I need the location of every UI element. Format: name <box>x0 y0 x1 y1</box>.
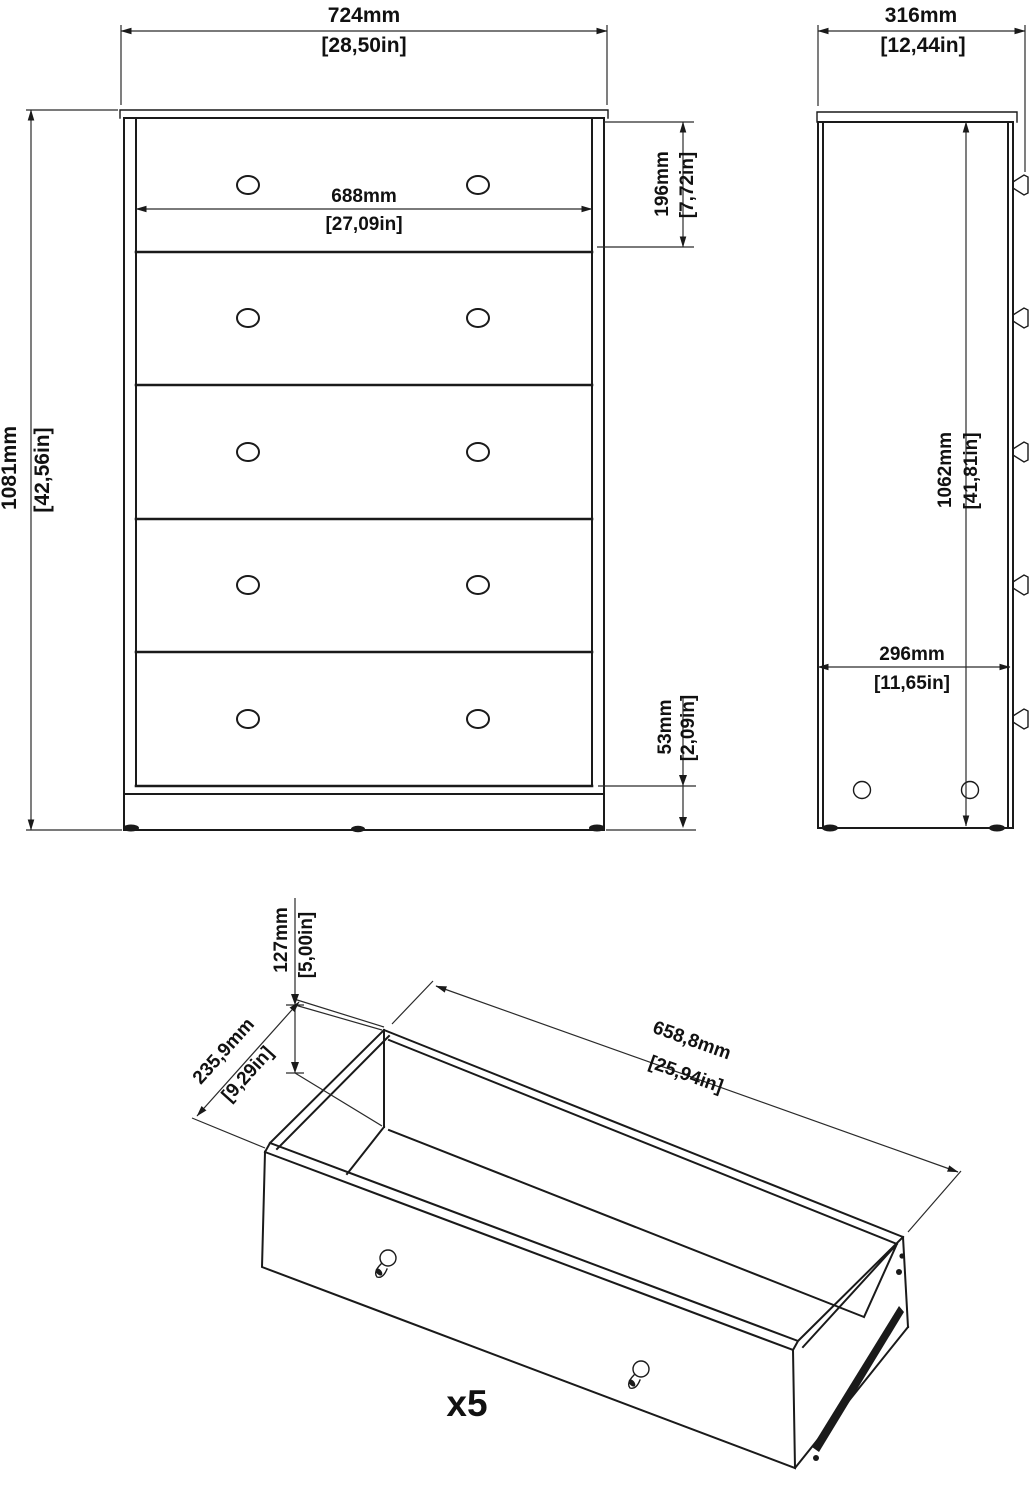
dim-arrow <box>679 775 687 786</box>
drawer-isometric-view: 127mm [5,00in] 235,9mm [9,29in] 658,8mm … <box>189 898 961 1468</box>
drawer-handle <box>467 309 489 327</box>
dim-drawer-height-mm: 127mm <box>271 907 292 973</box>
slide-rail-screw <box>899 1253 904 1258</box>
dim-overall-width-mm: 724mm <box>328 4 400 27</box>
drawer-handle <box>237 176 259 194</box>
front-feet <box>123 825 605 833</box>
knob-profile <box>1013 175 1028 195</box>
front-extension-lines <box>26 25 696 830</box>
drawer-handle <box>467 176 489 194</box>
side-hole <box>962 782 979 799</box>
foot <box>123 825 139 832</box>
drawer-slide-rail <box>812 1253 905 1461</box>
dim-handle-spacing-in: [27,09in] <box>325 214 402 235</box>
drawer-handle <box>237 710 259 728</box>
front-view: 724mm [28,50in] 1081mm [42,56in] 688mm [… <box>0 4 699 832</box>
dim-overall-depth-mm: 316mm <box>885 4 957 27</box>
dim-drawer-height-in: [5,00in] <box>296 912 317 979</box>
dim-bottom-gap-in: [2,09in] <box>678 695 699 762</box>
dim-overall-width-in: [28,50in] <box>321 34 406 57</box>
dim-arrow <box>679 817 687 828</box>
dim-handle-spacing-mm: 688mm <box>331 186 397 207</box>
side-knobs <box>1013 175 1028 729</box>
front-drawer-dividers <box>136 252 592 786</box>
side-view: 316mm [12,44in] 1062mm [41,81in] 296mm [… <box>817 4 1028 832</box>
dim-top-drawer-height-in: [7,72in] <box>677 152 698 219</box>
technical-drawing-page: 724mm [28,50in] 1081mm [42,56in] 688mm [… <box>0 0 1034 1486</box>
knob-cap <box>633 1361 649 1377</box>
dim-bottom-gap-mm: 53mm <box>655 700 676 755</box>
knob-profile <box>1013 709 1028 729</box>
foot <box>589 825 605 832</box>
dimension-drawing-svg: 724mm [28,50in] 1081mm [42,56in] 688mm [… <box>0 0 1034 1486</box>
foot <box>822 825 838 832</box>
dim-base-depth-in: [11,65in] <box>874 673 950 694</box>
slide-rail-strip <box>812 1306 904 1452</box>
drawer-handle <box>237 576 259 594</box>
dim-base-depth-mm: 296mm <box>879 644 945 665</box>
knob-profile <box>1013 442 1028 462</box>
dim-interior-height-mm: 1062mm <box>935 432 956 508</box>
dim-overall-depth-in: [12,44in] <box>880 34 965 57</box>
drawer-handle <box>467 710 489 728</box>
slide-rail-screw <box>896 1269 902 1275</box>
slide-rail-screw <box>813 1455 819 1461</box>
dim-arrow <box>291 1062 299 1073</box>
dim-interior-height-in: [41,81in] <box>961 432 982 509</box>
front-top-panel-lip <box>120 110 608 118</box>
knob-profile <box>1013 308 1028 328</box>
foot <box>351 826 365 832</box>
side-hole <box>854 782 871 799</box>
drawer-handle <box>237 309 259 327</box>
foot <box>989 825 1005 832</box>
drawer-handle <box>467 576 489 594</box>
dim-top-drawer-height-mm: 196mm <box>652 151 673 217</box>
dim-overall-height-mm: 1081mm <box>0 426 21 510</box>
dim-overall-height-in: [42,56in] <box>31 427 54 512</box>
drawer-handle <box>237 443 259 461</box>
knob-cap <box>380 1250 396 1266</box>
side-top-panel-lip <box>817 112 1017 122</box>
drawer-quantity-label: x5 <box>446 1383 487 1424</box>
side-cabinet-outline <box>818 122 1013 828</box>
front-drawer-handles <box>237 176 489 728</box>
knob-profile <box>1013 575 1028 595</box>
drawer-handle <box>467 443 489 461</box>
